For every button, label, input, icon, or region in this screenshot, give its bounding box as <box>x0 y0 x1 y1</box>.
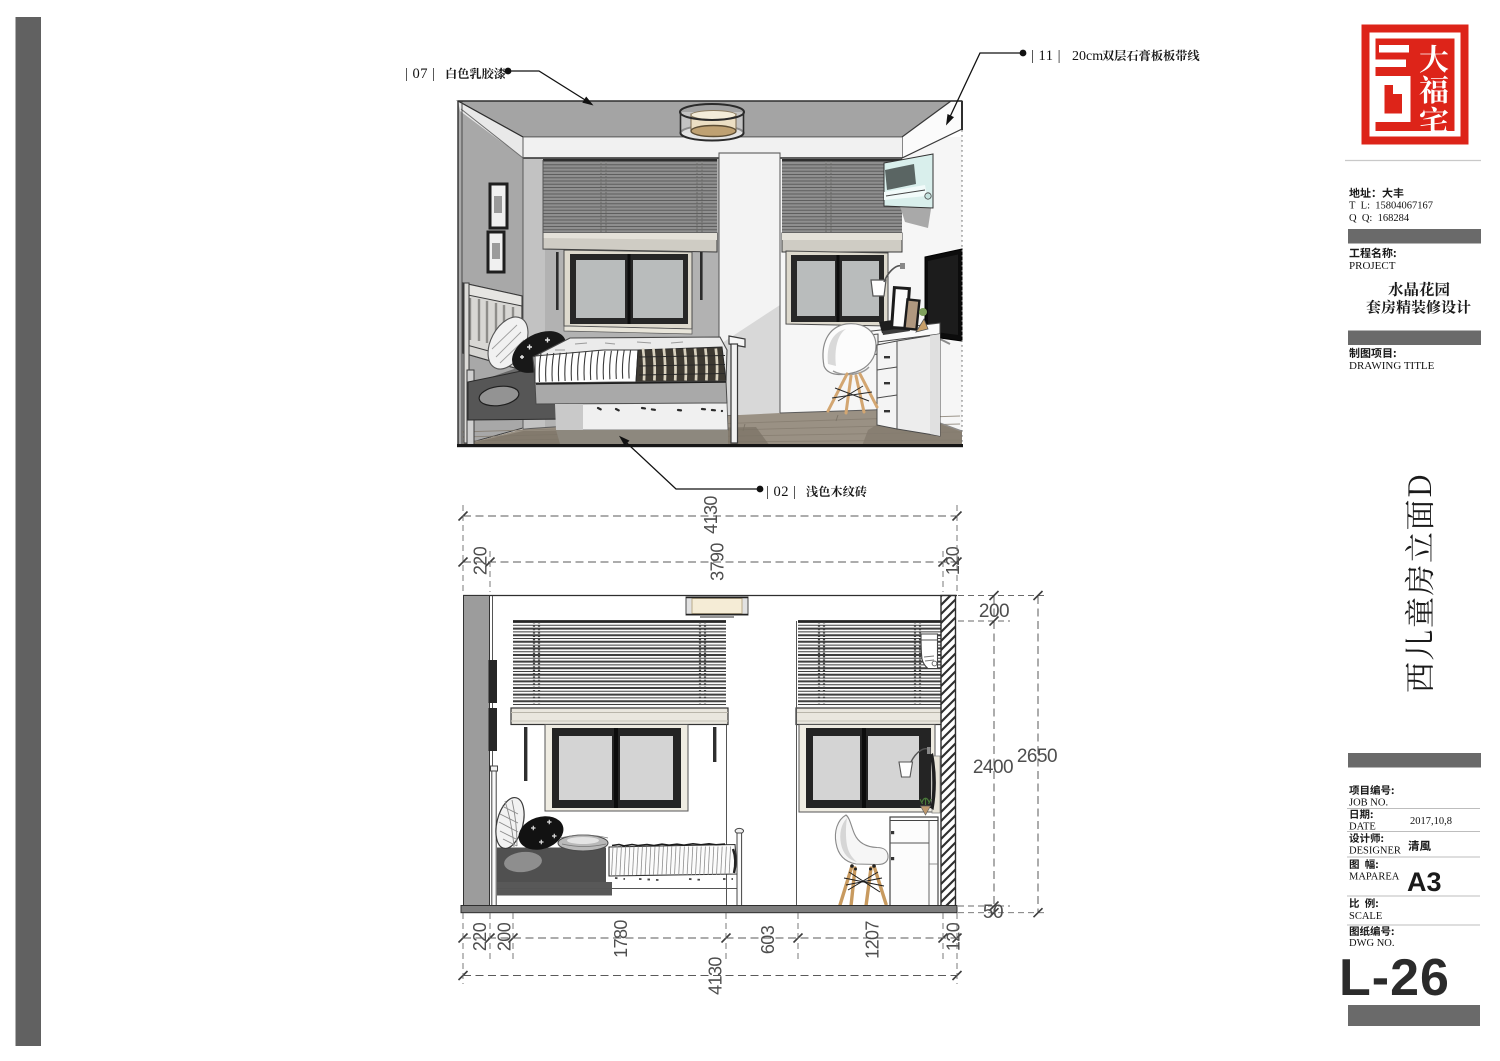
svg-text:200: 200 <box>495 922 515 951</box>
svg-text:220: 220 <box>470 922 490 951</box>
svg-text:DATE: DATE <box>1349 822 1376 833</box>
svg-text:DESIGNER: DESIGNER <box>1349 846 1401 857</box>
svg-text:2400: 2400 <box>973 757 1013 778</box>
svg-text:DRAWING TITLE: DRAWING TITLE <box>1349 360 1435 372</box>
svg-text:20cm: 20cm <box>1072 49 1103 64</box>
svg-text:3790: 3790 <box>708 543 728 581</box>
svg-text:PROJECT: PROJECT <box>1349 260 1396 272</box>
svg-text:50: 50 <box>983 902 1003 923</box>
svg-text:| 02 |: | 02 | <box>766 484 797 500</box>
svg-text:JOB NO.: JOB NO. <box>1349 798 1388 809</box>
svg-text:| 11 |: | 11 | <box>1031 48 1061 64</box>
svg-text:Q Q: 168284: Q Q: 168284 <box>1349 213 1410 224</box>
svg-text:T L: 15804067167: T L: 15804067167 <box>1349 201 1433 212</box>
svg-text:A3: A3 <box>1407 867 1442 897</box>
svg-text:120: 120 <box>944 922 964 951</box>
svg-text:DWG NO.: DWG NO. <box>1349 938 1395 949</box>
svg-text:4130: 4130 <box>706 957 726 995</box>
svg-text:1207: 1207 <box>863 921 883 959</box>
svg-text:603: 603 <box>758 925 778 954</box>
svg-text:2650: 2650 <box>1017 746 1057 767</box>
svg-text:2017,10,8: 2017,10,8 <box>1410 816 1452 827</box>
svg-text:L-26: L-26 <box>1339 949 1450 1007</box>
svg-text:200: 200 <box>979 601 1009 622</box>
svg-text:1780: 1780 <box>611 920 631 958</box>
svg-text:SCALE: SCALE <box>1349 911 1382 922</box>
svg-text:| 07 |: | 07 | <box>405 66 436 82</box>
svg-text:220: 220 <box>471 546 491 575</box>
svg-text:4130: 4130 <box>701 496 721 534</box>
svg-text:120: 120 <box>943 546 963 575</box>
svg-text:MAPAREA: MAPAREA <box>1349 872 1400 883</box>
